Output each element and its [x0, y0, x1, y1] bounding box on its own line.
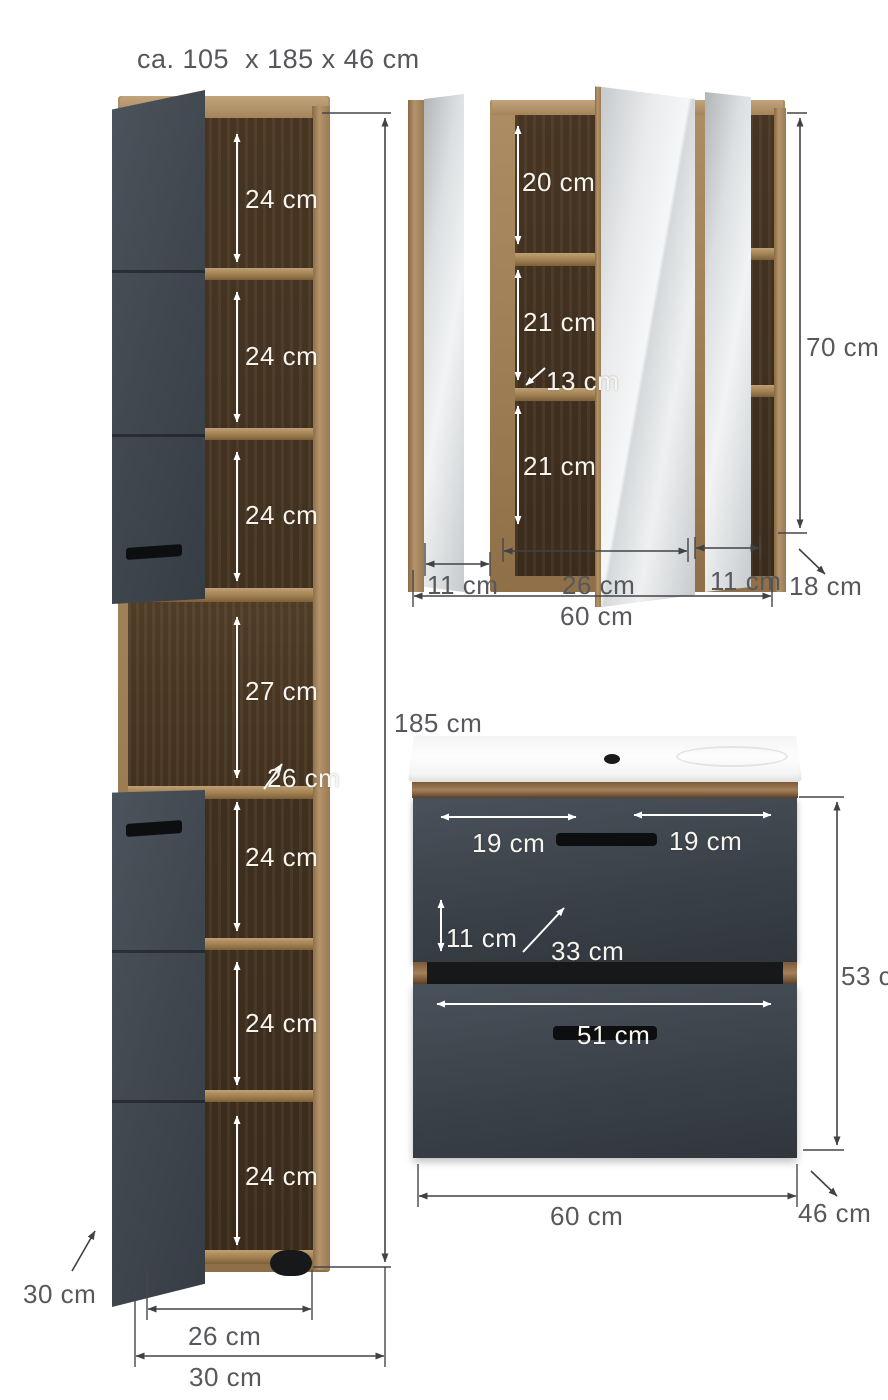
dim-label-compartment: 24 cm	[245, 1010, 318, 1036]
dim-label-width: 60 cm	[550, 1203, 623, 1229]
dim-label-compartment: 24 cm	[245, 844, 318, 870]
dim-label-height: 185 cm	[394, 710, 482, 736]
dim-label-compartment: 20 cm	[522, 169, 595, 195]
dim-label-center-width: 26 cm	[562, 572, 635, 598]
dim-label-outer-width: 30 cm	[189, 1364, 262, 1390]
dim-label-compartment: 24 cm	[245, 343, 318, 369]
dim-label-compartment: 27 cm	[245, 678, 318, 704]
dim-label-drawer-left: 19 cm	[472, 830, 545, 856]
dim-label-compartment: 21 cm	[523, 309, 596, 335]
dim-label-lower-drawer: 51 cm	[577, 1022, 650, 1048]
dim-label-inner-depth: 33 cm	[551, 938, 624, 964]
dim-label-compartment: 24 cm	[245, 1163, 318, 1189]
dim-label-depth: 46 cm	[798, 1200, 871, 1226]
dimension-lines	[0, 0, 888, 1400]
dim-label-compartment: 21 cm	[523, 453, 596, 479]
dim-label-front-height: 11 cm	[446, 925, 517, 951]
dim-label-width: 60 cm	[560, 603, 633, 629]
dim-label-shelf: 13 cm	[546, 368, 619, 394]
overall-dimensions-title: ca. 105 x 185 x 46 cm	[137, 46, 420, 73]
dim-label-height: 53 cm	[841, 963, 888, 989]
dim-label-compartment: 24 cm	[245, 186, 318, 212]
dim-label-height: 70 cm	[806, 334, 879, 360]
dim-label-right-door: 11 cm	[710, 568, 781, 594]
dim-label-left-door: 11 cm	[427, 572, 498, 598]
dim-label-inner-width: 26 cm	[188, 1323, 261, 1349]
dim-label-drawer-right: 19 cm	[669, 828, 742, 854]
product-dimension-diagram: ca. 105 x 185 x 46 cm 24 cm 24 cm 24 cm …	[0, 0, 888, 1400]
dim-label-depth: 30 cm	[23, 1281, 96, 1307]
dim-label-shelf-depth: 26 cm	[267, 765, 340, 791]
dim-label-compartment: 24 cm	[245, 502, 318, 528]
dim-label-depth: 18 cm	[789, 573, 862, 599]
